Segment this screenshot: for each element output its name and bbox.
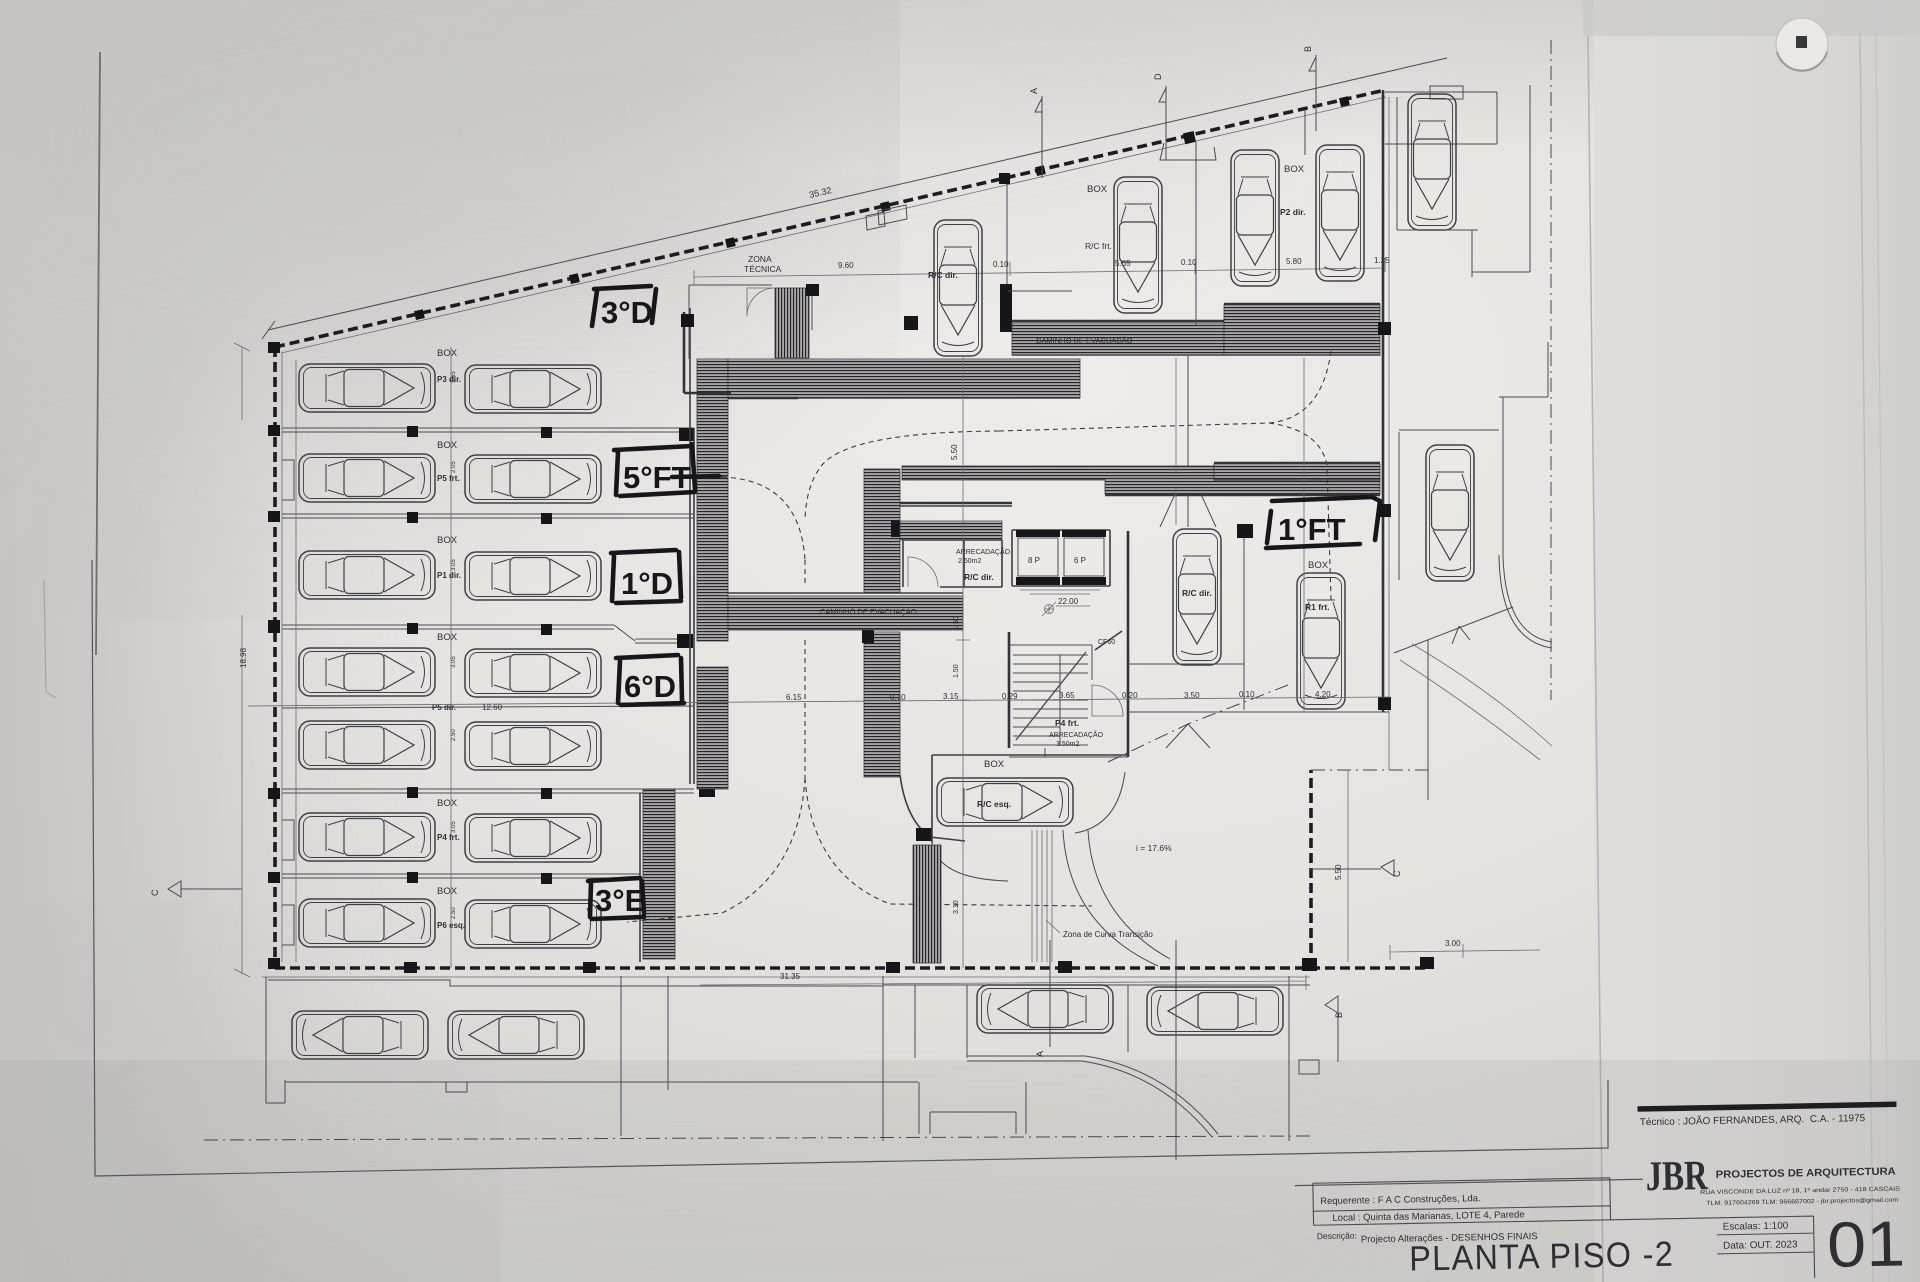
svg-text:Escalas: 1:100: Escalas: 1:100 xyxy=(1723,1221,1789,1233)
svg-text:2.05: 2.05 xyxy=(451,461,457,473)
svg-text:0.10: 0.10 xyxy=(890,693,906,702)
svg-text:31.35: 31.35 xyxy=(780,972,801,981)
svg-text:3.50: 3.50 xyxy=(1184,691,1200,700)
svg-text:3.05: 3.05 xyxy=(451,821,457,833)
svg-text:4.20: 4.20 xyxy=(1315,690,1331,699)
svg-text:R/C frt.: R/C frt. xyxy=(1085,241,1112,251)
svg-text:BOX: BOX xyxy=(437,440,458,451)
svg-text:0.20: 0.20 xyxy=(1122,691,1138,700)
svg-text:A: A xyxy=(1035,1051,1045,1057)
svg-text:Descrição:: Descrição: xyxy=(1317,1230,1357,1241)
svg-text:R/C dir.: R/C dir. xyxy=(928,270,958,280)
svg-text:5.80: 5.80 xyxy=(1286,257,1302,266)
svg-text:B: B xyxy=(1334,1012,1344,1018)
svg-text:1.50: 1.50 xyxy=(953,616,960,630)
svg-text:1°D: 1°D xyxy=(621,566,673,601)
svg-text:5.50: 5.50 xyxy=(950,444,959,460)
svg-text:3.00: 3.00 xyxy=(1445,939,1461,948)
svg-text:2.50m2: 2.50m2 xyxy=(958,558,981,565)
svg-text:P4 frt.: P4 frt. xyxy=(1055,718,1079,728)
svg-text:8 P: 8 P xyxy=(1028,556,1040,565)
svg-text:R/C dir.: R/C dir. xyxy=(964,572,994,582)
svg-text:P2 dir.: P2 dir. xyxy=(1280,207,1306,217)
svg-text:BOX: BOX xyxy=(437,535,458,546)
svg-text:TÉCNICA: TÉCNICA xyxy=(744,264,782,274)
svg-text:0.10: 0.10 xyxy=(1239,690,1255,699)
svg-text:1°FT: 1°FT xyxy=(1278,512,1346,547)
svg-text:CAMINHO DE EVACUAÇÃO: CAMINHO DE EVACUAÇÃO xyxy=(820,607,917,616)
svg-text:CAMINHO DE EVACUAÇÃO: CAMINHO DE EVACUAÇÃO xyxy=(1036,336,1133,345)
svg-text:18.98: 18.98 xyxy=(239,647,248,668)
svg-text:PLANTA PISO -2: PLANTA PISO -2 xyxy=(1409,1235,1675,1279)
svg-text:R/C dir.: R/C dir. xyxy=(1182,588,1212,598)
svg-text:6°D: 6°D xyxy=(624,669,676,704)
svg-text:BOX: BOX xyxy=(984,759,1005,770)
svg-text:5°FT: 5°FT xyxy=(623,460,691,495)
svg-text:P3 dir.: P3 dir. xyxy=(437,375,461,384)
svg-text:P1 dir.: P1 dir. xyxy=(437,571,461,580)
svg-text:2.50: 2.50 xyxy=(451,729,457,741)
svg-text:0.29: 0.29 xyxy=(1002,692,1018,701)
svg-text:BOX: BOX xyxy=(1284,164,1305,175)
svg-text:ZONA: ZONA xyxy=(748,254,772,264)
svg-text:BOX: BOX xyxy=(437,798,458,809)
svg-text:C: C xyxy=(1392,870,1402,877)
svg-text:A: A xyxy=(1029,88,1039,94)
svg-text:9.60: 9.60 xyxy=(838,261,854,270)
svg-text:BOX: BOX xyxy=(437,348,458,359)
svg-text:01: 01 xyxy=(1826,1207,1905,1280)
svg-text:B: B xyxy=(1303,46,1313,52)
svg-text:BOX: BOX xyxy=(1308,560,1329,571)
svg-text:C: C xyxy=(150,889,160,896)
svg-text:R/C esq.: R/C esq. xyxy=(977,799,1011,809)
svg-text:3.05: 3.05 xyxy=(451,559,457,571)
svg-text:P4 frt.: P4 frt. xyxy=(437,833,460,842)
svg-text:3°E: 3°E xyxy=(595,883,645,918)
svg-text:1.50: 1.50 xyxy=(953,664,960,678)
svg-text:i = 17.6%: i = 17.6% xyxy=(1136,843,1172,853)
svg-text:ARRECADAÇÃO: ARRECADAÇÃO xyxy=(1049,730,1104,739)
svg-text:P6 esq.: P6 esq. xyxy=(437,921,465,930)
svg-text:2.50: 2.50 xyxy=(451,907,457,919)
svg-text:BOX: BOX xyxy=(437,632,458,643)
svg-text:6 P: 6 P xyxy=(1074,556,1086,565)
svg-text:P5 frt.: P5 frt. xyxy=(437,474,460,483)
svg-text:Data: OUT. 2023: Data: OUT. 2023 xyxy=(1723,1239,1798,1251)
svg-text:6.15: 6.15 xyxy=(786,693,802,702)
svg-text:3.65: 3.65 xyxy=(1059,691,1075,700)
svg-text:3.50m2: 3.50m2 xyxy=(1056,741,1079,748)
svg-text:3.05: 3.05 xyxy=(451,656,457,668)
svg-text:CF60: CF60 xyxy=(1098,639,1115,646)
svg-text:3.10: 3.10 xyxy=(953,900,960,914)
svg-text:D: D xyxy=(1153,73,1163,80)
svg-text:Zona de Curva Transição: Zona de Curva Transição xyxy=(1063,930,1153,939)
svg-text:5.50: 5.50 xyxy=(1334,864,1343,880)
svg-text:3°D: 3°D xyxy=(601,295,653,330)
svg-text:22.00: 22.00 xyxy=(1058,597,1079,606)
svg-text:BOX: BOX xyxy=(437,886,458,897)
svg-text:R1 frt.: R1 frt. xyxy=(1305,602,1330,612)
svg-text:BOX: BOX xyxy=(1087,184,1108,195)
svg-text:ARRECADAÇÃO: ARRECADAÇÃO xyxy=(956,547,1011,556)
svg-text:0.10: 0.10 xyxy=(1181,258,1197,267)
